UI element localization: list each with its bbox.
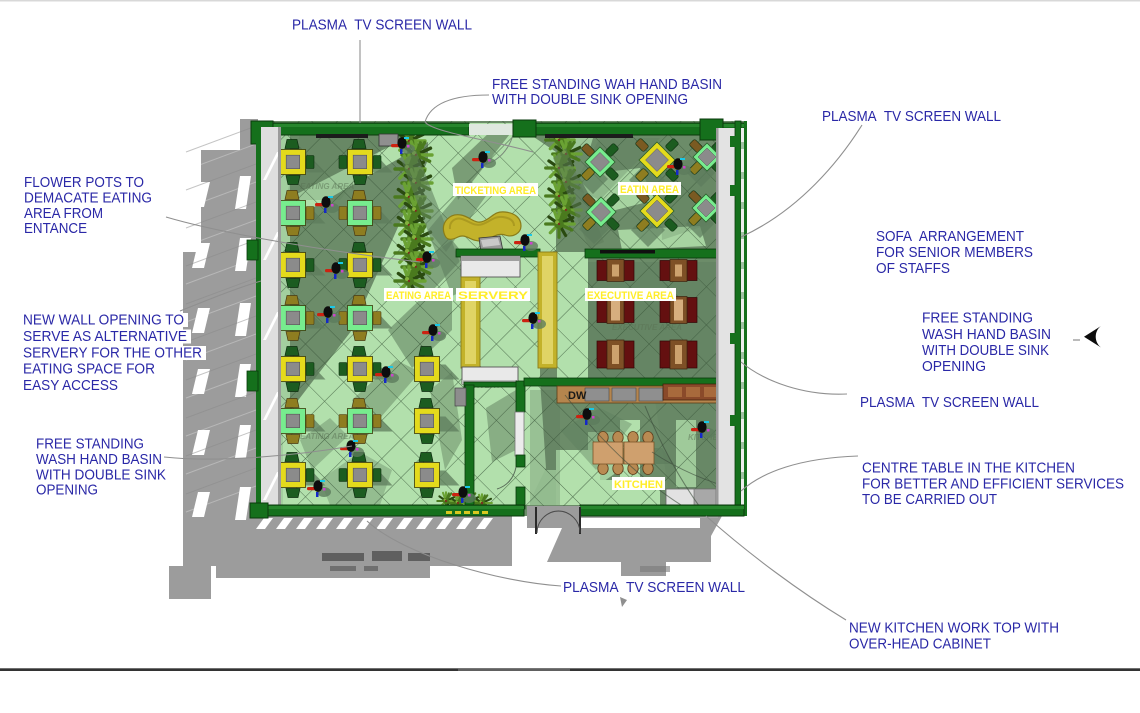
svg-text:EATING AREA: EATING AREA — [300, 182, 354, 191]
svg-text:TICKETING AREA: TICKETING AREA — [455, 185, 536, 197]
svg-text:WASH HAND BASIN: WASH HAND BASIN — [922, 326, 1051, 343]
svg-text:WITH DOUBLE SINK OPENING: WITH DOUBLE SINK OPENING — [492, 91, 688, 108]
svg-text:PLASMA TV SCREEN WALL: PLASMA TV SCREEN WALL — [563, 579, 745, 596]
svg-text:EATING AREA: EATING AREA — [386, 290, 451, 302]
svg-text:SERVERY: SERVERY — [458, 290, 529, 302]
svg-text:CENTRE TABLE IN THE KITCHEN: CENTRE TABLE IN THE KITCHEN — [862, 460, 1075, 477]
svg-text:SERVERY FOR THE OTHER: SERVERY FOR THE OTHER — [23, 344, 202, 361]
svg-text:OPENING: OPENING — [36, 482, 98, 499]
svg-text:EATIN AREA: EATIN AREA — [620, 184, 679, 196]
svg-text:PLASMA TV SCREEN WALL: PLASMA TV SCREEN WALL — [822, 108, 1001, 125]
svg-text:WITH DOUBLE SINK: WITH DOUBLE SINK — [922, 342, 1049, 359]
svg-text:SOFA ARRANGEMENT: SOFA ARRANGEMENT — [876, 228, 1024, 245]
svg-text:ENTANCE: ENTANCE — [24, 220, 87, 237]
svg-text:EATING SPACE FOR: EATING SPACE FOR — [23, 361, 155, 378]
svg-text:TO BE CARRIED OUT: TO BE CARRIED OUT — [862, 491, 997, 508]
svg-text:OVER-HEAD CABINET: OVER-HEAD CABINET — [849, 635, 991, 652]
svg-text:EXECUTIVE AREA: EXECUTIVE AREA — [587, 290, 674, 302]
svg-text:KITCHEN: KITCHEN — [614, 479, 663, 491]
svg-text:FOR BETTER AND EFFICIENT SERVI: FOR BETTER AND EFFICIENT SERVICES — [862, 475, 1124, 492]
svg-text:OF STAFFS: OF STAFFS — [876, 260, 950, 277]
svg-text:NEW KITCHEN WORK TOP WITH: NEW KITCHEN WORK TOP WITH — [849, 620, 1059, 637]
svg-text:PLASMA TV SCREEN WALL: PLASMA TV SCREEN WALL — [860, 394, 1039, 411]
svg-text:EASY ACCESS: EASY ACCESS — [23, 377, 118, 394]
svg-text:OPENING: OPENING — [922, 358, 986, 375]
svg-text:DW: DW — [568, 390, 587, 402]
svg-text:EXECUTIVE AREA: EXECUTIVE AREA — [612, 323, 682, 332]
svg-text:FREE STANDING: FREE STANDING — [922, 310, 1033, 327]
svg-text:PLASMA TV SCREEN WALL: PLASMA TV SCREEN WALL — [292, 17, 472, 34]
svg-text:EATING AREA: EATING AREA — [300, 432, 354, 441]
svg-text:SERVE AS ALTERNATIVE: SERVE AS ALTERNATIVE — [23, 328, 187, 345]
svg-text:NEW WALL OPENING TO: NEW WALL OPENING TO — [23, 312, 184, 329]
svg-text:FOR SENIOR MEMBERS: FOR SENIOR MEMBERS — [876, 244, 1033, 261]
